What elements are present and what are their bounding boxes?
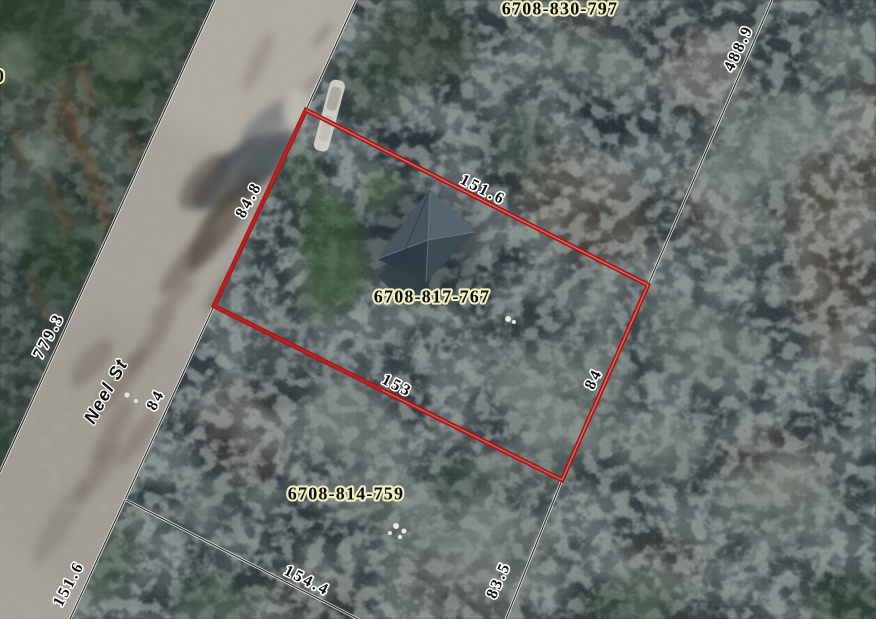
svg-text:6708-830-797: 6708-830-797 bbox=[502, 0, 618, 19]
svg-text:0: 0 bbox=[0, 66, 5, 86]
svg-text:6708-814-759: 6708-814-759 bbox=[288, 484, 404, 504]
svg-text:6708-817-767: 6708-817-767 bbox=[374, 287, 490, 307]
